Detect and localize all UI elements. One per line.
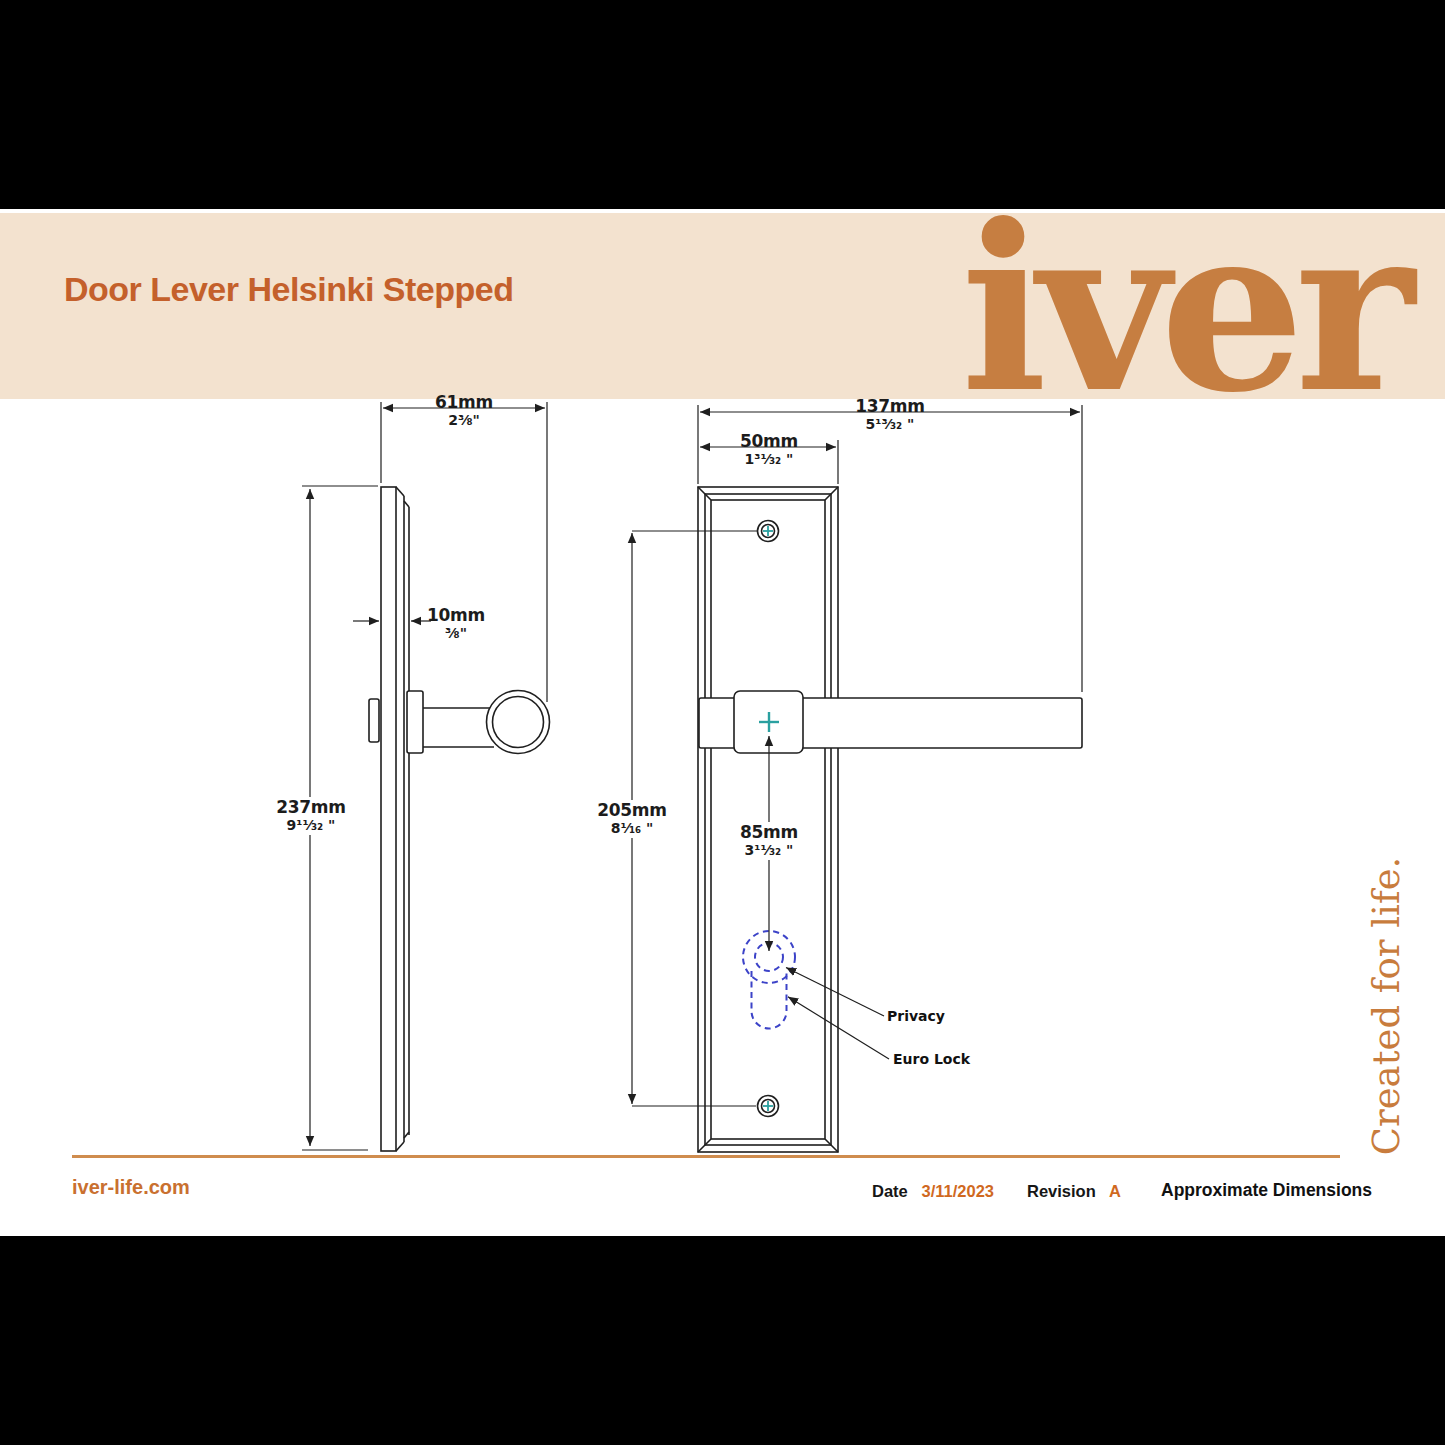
- front-view: [698, 487, 1082, 1152]
- euro-lock-label: Euro Lock: [893, 1051, 970, 1067]
- side-plate-front: [381, 487, 396, 1151]
- side-lever-collar: [407, 691, 423, 753]
- dim-front-plate-width: 50mm 1³¹⁄₃₂ ": [740, 432, 798, 468]
- front-plate-corner-miters: [698, 487, 838, 1152]
- approximate-dimensions-note: Approximate Dimensions: [1161, 1180, 1372, 1201]
- front-plate-inner: [711, 500, 825, 1139]
- date-label: Date: [872, 1182, 908, 1200]
- side-plate-steps: [396, 487, 409, 1151]
- technical-drawing: [0, 0, 1445, 1445]
- date-field: Date 3/11/2023: [872, 1182, 994, 1201]
- dim-side-thickness: 10mm ³⁄₈": [427, 606, 485, 642]
- front-view-dimensions: [632, 405, 1082, 1106]
- front-plate-outer: [698, 487, 838, 1152]
- date-value: 3/11/2023: [922, 1182, 995, 1200]
- revision-value: A: [1109, 1182, 1121, 1200]
- side-latch-tab: [369, 699, 379, 742]
- footer-rule: [72, 1155, 1340, 1158]
- dim-side-width: 61mm 2³⁄₈": [435, 393, 493, 429]
- privacy-label: Privacy: [887, 1008, 945, 1024]
- dim-front-total-width: 137mm 5¹³⁄₃₂ ": [855, 397, 924, 433]
- side-lever-end-outer: [487, 691, 550, 754]
- side-view: [369, 487, 550, 1151]
- front-plate-middle: [705, 494, 831, 1145]
- revision-label: Revision: [1027, 1182, 1096, 1200]
- dim-side-height: 237mm 9¹¹⁄₃₂ ": [272, 797, 349, 835]
- side-view-dimensions: [302, 402, 547, 1150]
- dim-lock-centre: 85mm 3¹¹⁄₃₂ ": [736, 822, 802, 860]
- website-link[interactable]: iver-life.com: [72, 1176, 190, 1199]
- tagline-vertical: Created for life.: [1361, 841, 1411, 1171]
- spec-sheet-page: Door Lever Helsinki Stepped iver: [0, 0, 1445, 1445]
- dim-fixing-centres: 205mm 8¹⁄₁₆ ": [593, 800, 670, 838]
- revision-field: Revision A: [1027, 1182, 1121, 1201]
